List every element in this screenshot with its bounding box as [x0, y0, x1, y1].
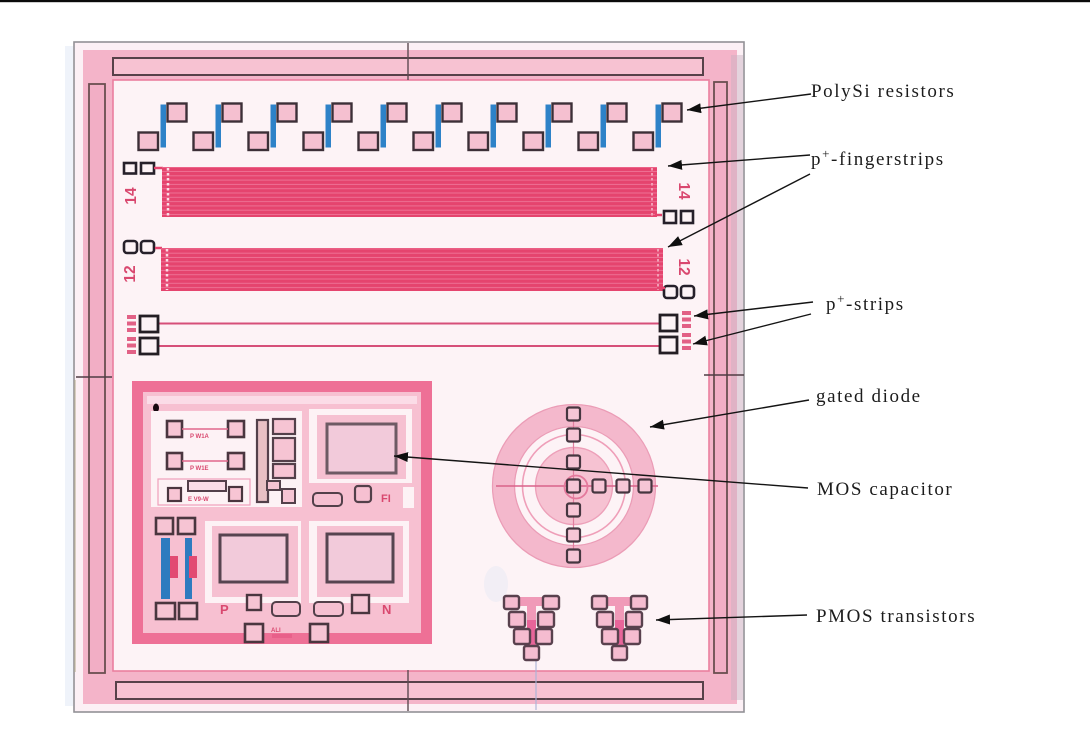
- svg-text:P: P: [220, 602, 229, 617]
- svg-text:14: 14: [123, 187, 140, 205]
- svg-text:p+-fingerstrips: p+-fingerstrips: [811, 146, 945, 170]
- svg-text:PolySi resistors: PolySi resistors: [811, 81, 955, 102]
- svg-text:p+-strips: p+-strips: [826, 291, 905, 315]
- svg-text:FI: FI: [381, 493, 391, 505]
- svg-text:gated diode: gated diode: [816, 386, 922, 407]
- svg-text:PMOS transistors: PMOS transistors: [816, 606, 976, 627]
- svg-text:ALI: ALI: [271, 628, 281, 634]
- svg-text:E V9-W: E V9-W: [188, 497, 209, 503]
- svg-text:12: 12: [675, 258, 692, 275]
- svg-text:12: 12: [122, 265, 139, 282]
- svg-text:N: N: [382, 602, 391, 617]
- svg-text:P W1A: P W1A: [190, 434, 210, 440]
- svg-text:14: 14: [675, 182, 692, 200]
- svg-text:P W1E: P W1E: [190, 466, 209, 472]
- svg-text:MOS capacitor: MOS capacitor: [817, 479, 953, 500]
